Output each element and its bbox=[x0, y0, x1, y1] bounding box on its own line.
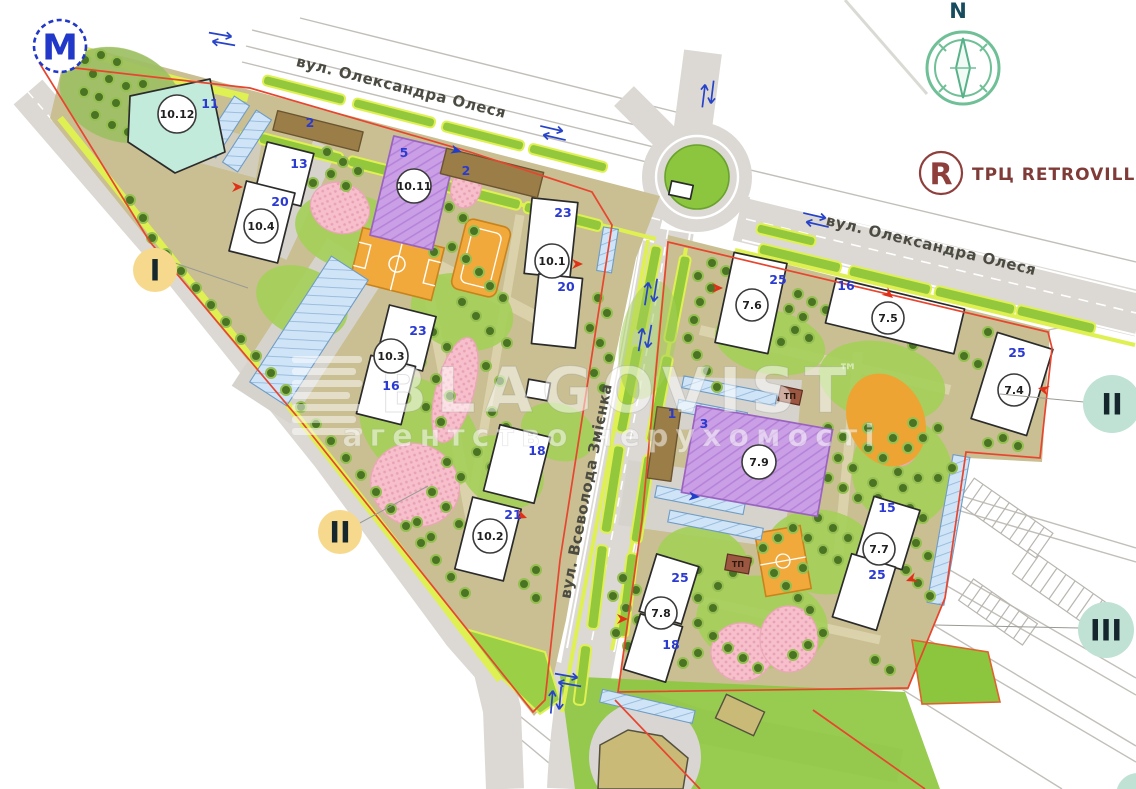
floors-label: 21 bbox=[504, 507, 521, 522]
tree bbox=[121, 81, 131, 91]
tree bbox=[341, 181, 351, 191]
tree bbox=[441, 502, 451, 512]
tree bbox=[933, 473, 943, 483]
tree bbox=[781, 581, 791, 591]
tree bbox=[338, 157, 348, 167]
tree bbox=[998, 433, 1008, 443]
floors-label: 13 bbox=[290, 156, 307, 171]
tree bbox=[788, 523, 798, 533]
tree bbox=[838, 483, 848, 493]
tree bbox=[371, 487, 381, 497]
svg-text:7.8: 7.8 bbox=[651, 607, 671, 620]
tree bbox=[983, 438, 993, 448]
tree bbox=[793, 289, 803, 299]
tree bbox=[138, 213, 148, 223]
tree bbox=[833, 555, 843, 565]
tree bbox=[79, 87, 89, 97]
building-badge-10.3: 10.3 bbox=[374, 339, 408, 373]
floors-label: 18 bbox=[662, 637, 679, 652]
tree bbox=[689, 315, 699, 325]
tree bbox=[485, 281, 495, 291]
tree bbox=[498, 293, 508, 303]
svg-text:7.7: 7.7 bbox=[869, 543, 889, 556]
tree bbox=[456, 472, 466, 482]
svg-text:10.4: 10.4 bbox=[247, 220, 274, 233]
tree bbox=[585, 323, 595, 333]
tree bbox=[784, 304, 794, 314]
tree bbox=[281, 385, 291, 395]
floors-label: 25 bbox=[671, 570, 688, 585]
site-plan-page: BLAGOVIST ™ агентство нерухомості вул. О… bbox=[0, 0, 1136, 789]
tree bbox=[447, 242, 457, 252]
building-badge-7.8: 7.8 bbox=[645, 597, 677, 629]
tree bbox=[708, 631, 718, 641]
tree bbox=[531, 565, 541, 575]
tree bbox=[870, 655, 880, 665]
tree bbox=[485, 326, 495, 336]
tree bbox=[888, 433, 898, 443]
tree bbox=[807, 297, 817, 307]
tree bbox=[947, 463, 957, 473]
site-plan-map: BLAGOVIST ™ агентство нерухомості вул. О… bbox=[0, 0, 1136, 789]
tree bbox=[803, 640, 813, 650]
tree bbox=[1013, 441, 1023, 451]
retroville-letter: R bbox=[929, 158, 952, 193]
tree bbox=[341, 453, 351, 463]
floors-label: 5 bbox=[400, 145, 409, 160]
tree bbox=[457, 297, 467, 307]
floors-label: 18 bbox=[528, 443, 545, 458]
tree bbox=[776, 337, 786, 347]
tree bbox=[416, 538, 426, 548]
utility-label: ТП bbox=[784, 392, 796, 401]
tree bbox=[918, 433, 928, 443]
building-badge-7.9: 7.9 bbox=[742, 445, 776, 479]
tree bbox=[502, 338, 512, 348]
tree bbox=[885, 665, 895, 675]
tree bbox=[412, 517, 422, 527]
tree bbox=[973, 359, 983, 369]
tree bbox=[818, 628, 828, 638]
tree bbox=[913, 473, 923, 483]
section-marker-III: III bbox=[1078, 602, 1134, 658]
svg-text:10.11: 10.11 bbox=[397, 180, 432, 193]
svg-text:10.2: 10.2 bbox=[476, 530, 503, 543]
section-marker-I: I bbox=[133, 248, 177, 292]
tree bbox=[848, 463, 858, 473]
tree bbox=[266, 368, 276, 378]
tree bbox=[898, 483, 908, 493]
building-badge-7.6: 7.6 bbox=[736, 289, 768, 321]
tree bbox=[474, 267, 484, 277]
tree bbox=[693, 593, 703, 603]
tree bbox=[602, 308, 612, 318]
building-badge-7.4: 7.4 bbox=[998, 374, 1030, 406]
tree bbox=[386, 504, 396, 514]
tree bbox=[471, 311, 481, 321]
tree bbox=[903, 443, 913, 453]
tree bbox=[843, 533, 853, 543]
tree bbox=[793, 593, 803, 603]
tree bbox=[461, 254, 471, 264]
tree bbox=[90, 110, 100, 120]
tree bbox=[868, 478, 878, 488]
svg-text:II: II bbox=[1101, 387, 1123, 421]
watermark-subtitle: агентство нерухомості bbox=[342, 419, 881, 454]
annex-label: 2 bbox=[462, 163, 471, 178]
tree bbox=[221, 317, 231, 327]
tree bbox=[925, 591, 935, 601]
floors-label: 16 bbox=[837, 278, 855, 293]
building-badge-10.12: 10.12 bbox=[158, 95, 196, 133]
tree bbox=[444, 202, 454, 212]
tree bbox=[611, 628, 621, 638]
tree bbox=[442, 457, 452, 467]
metro-icon: М bbox=[34, 20, 86, 72]
roundabout bbox=[642, 122, 752, 232]
tree bbox=[738, 653, 748, 663]
tree bbox=[911, 538, 921, 548]
tree bbox=[322, 147, 332, 157]
tree bbox=[828, 523, 838, 533]
tree bbox=[798, 563, 808, 573]
floors-label: 11 bbox=[201, 96, 218, 111]
floors-label: 25 bbox=[769, 272, 786, 287]
tree bbox=[104, 74, 114, 84]
building-badge-10.11: 10.11 bbox=[397, 169, 432, 203]
tree bbox=[236, 334, 246, 344]
building-badge-7.5: 7.5 bbox=[872, 302, 904, 334]
tree bbox=[878, 453, 888, 463]
svg-text:10.12: 10.12 bbox=[160, 108, 195, 121]
tree bbox=[531, 593, 541, 603]
retroville-label: ТРЦ RETROVILLE bbox=[972, 165, 1136, 185]
building-badge-7.7: 7.7 bbox=[863, 533, 895, 565]
tree bbox=[446, 572, 456, 582]
tree bbox=[788, 650, 798, 660]
metro-letter: М bbox=[42, 28, 78, 69]
tree bbox=[454, 519, 464, 529]
tree bbox=[790, 325, 800, 335]
svg-text:10.1: 10.1 bbox=[538, 255, 565, 268]
tree bbox=[107, 120, 117, 130]
tree bbox=[683, 333, 693, 343]
tree bbox=[251, 351, 261, 361]
annex-label: 1 bbox=[668, 406, 677, 421]
tree bbox=[753, 663, 763, 673]
tree bbox=[96, 50, 106, 60]
tree bbox=[798, 312, 808, 322]
tree bbox=[769, 568, 779, 578]
roundabout-island bbox=[665, 145, 729, 209]
tree bbox=[401, 521, 411, 531]
tree bbox=[458, 213, 468, 223]
tree bbox=[427, 487, 437, 497]
building-badge-10.2: 10.2 bbox=[473, 519, 507, 553]
tree bbox=[469, 226, 479, 236]
floors-label: 20 bbox=[271, 194, 289, 209]
tree bbox=[426, 532, 436, 542]
tree bbox=[519, 579, 529, 589]
tree bbox=[111, 98, 121, 108]
svg-text:I: I bbox=[150, 253, 161, 287]
floors-label: 20 bbox=[557, 279, 575, 294]
watermark-brand: BLAGOVIST bbox=[380, 354, 856, 427]
tree bbox=[678, 658, 688, 668]
tree bbox=[326, 436, 336, 446]
tree bbox=[595, 338, 605, 348]
building-badge-10.4: 10.4 bbox=[244, 209, 278, 243]
tree bbox=[442, 342, 452, 352]
tree bbox=[853, 493, 863, 503]
tree bbox=[833, 453, 843, 463]
annex-label: 2 bbox=[306, 115, 315, 130]
tree bbox=[138, 79, 148, 89]
floors-label: 15 bbox=[878, 500, 895, 515]
svg-text:7.9: 7.9 bbox=[749, 456, 769, 469]
tree bbox=[608, 591, 618, 601]
floors-label: 23 bbox=[409, 323, 426, 338]
floors-label: 16 bbox=[382, 378, 400, 393]
tree bbox=[695, 297, 705, 307]
tree bbox=[804, 333, 814, 343]
tree bbox=[431, 555, 441, 565]
floors-label: 25 bbox=[1008, 345, 1025, 360]
tree bbox=[693, 618, 703, 628]
tree bbox=[708, 603, 718, 613]
section-marker-II-west: II bbox=[318, 510, 362, 554]
tree bbox=[818, 545, 828, 555]
tree bbox=[803, 533, 813, 543]
tree bbox=[356, 470, 366, 480]
tree bbox=[908, 418, 918, 428]
tree bbox=[94, 92, 104, 102]
compass-north-label: N bbox=[949, 0, 967, 23]
floors-label: 25 bbox=[868, 567, 885, 582]
tree bbox=[893, 467, 903, 477]
tree bbox=[326, 169, 336, 179]
watermark-tm: ™ bbox=[838, 359, 858, 383]
tree bbox=[773, 533, 783, 543]
tree bbox=[707, 258, 717, 268]
tree bbox=[112, 57, 122, 67]
tree bbox=[693, 648, 703, 658]
tree bbox=[693, 271, 703, 281]
tree bbox=[983, 327, 993, 337]
tree bbox=[353, 166, 363, 176]
utility-label: ТП bbox=[732, 560, 744, 569]
tree bbox=[805, 605, 815, 615]
tree bbox=[618, 573, 628, 583]
tree bbox=[723, 643, 733, 653]
tree bbox=[460, 588, 470, 598]
svg-text:10.3: 10.3 bbox=[377, 350, 404, 363]
svg-text:III: III bbox=[1090, 613, 1122, 647]
building-badge-10.1: 10.1 bbox=[535, 244, 569, 278]
tree bbox=[206, 300, 216, 310]
tree bbox=[959, 351, 969, 361]
tree bbox=[308, 178, 318, 188]
tree bbox=[933, 423, 943, 433]
svg-text:7.6: 7.6 bbox=[742, 299, 762, 312]
svg-text:II: II bbox=[329, 515, 351, 549]
tree bbox=[923, 551, 933, 561]
tree bbox=[758, 543, 768, 553]
tree bbox=[713, 581, 723, 591]
svg-text:7.5: 7.5 bbox=[878, 312, 898, 325]
floors-label: 3 bbox=[700, 416, 709, 431]
floors-label: 23 bbox=[554, 205, 571, 220]
